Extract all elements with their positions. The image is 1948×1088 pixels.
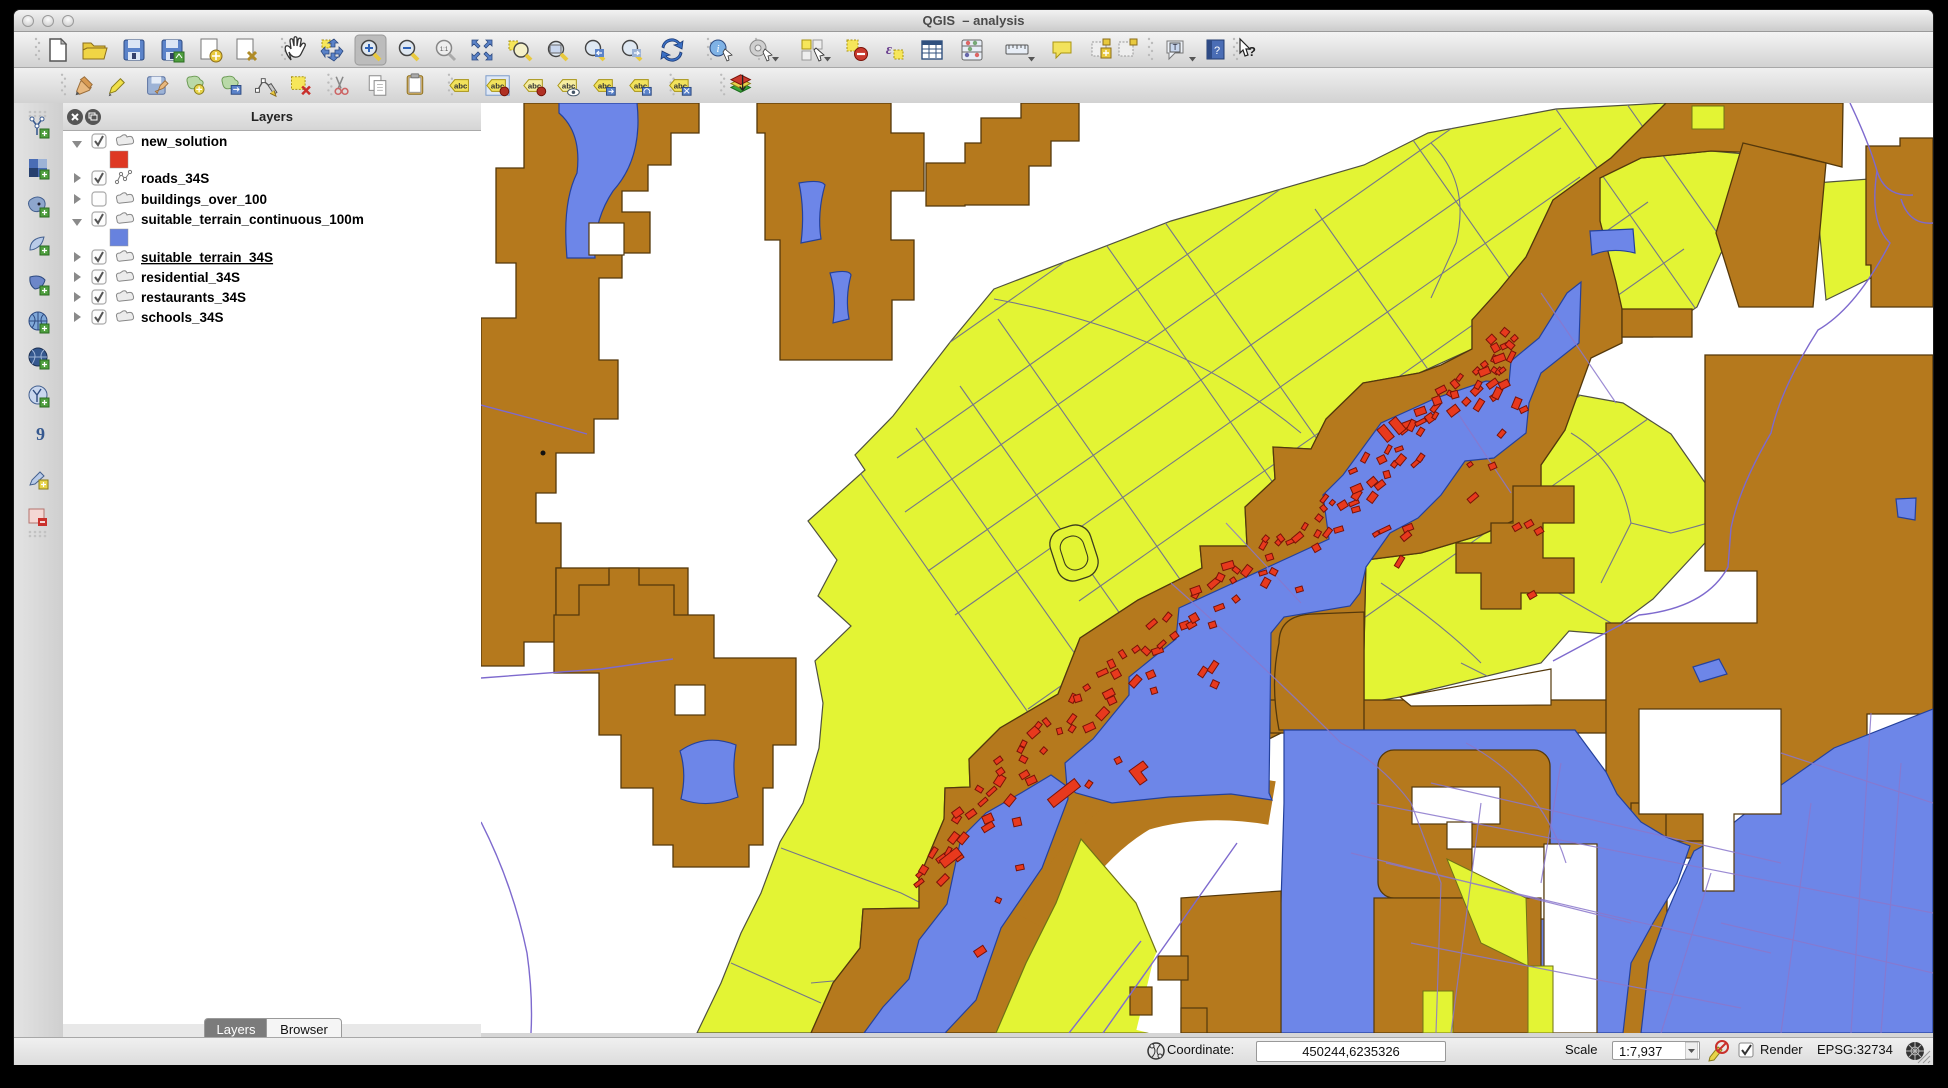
svg-text:suitable_terrain_34S: suitable_terrain_34S: [141, 250, 273, 265]
svg-text:buildings_over_100: buildings_over_100: [141, 192, 267, 207]
svg-text:ε: ε: [886, 42, 893, 58]
svg-text:suitable_terrain_continuous_10: suitable_terrain_continuous_100m: [141, 212, 364, 227]
svg-text:schools_34S: schools_34S: [141, 310, 224, 325]
svg-text:9: 9: [36, 424, 45, 444]
svg-text:T: T: [1173, 43, 1178, 52]
svg-text:i: i: [716, 43, 719, 55]
svg-text:1:1: 1:1: [440, 47, 449, 53]
svg-text:?: ?: [1214, 45, 1220, 57]
svg-text:residential_34S: residential_34S: [141, 270, 240, 285]
svg-text:?: ?: [1248, 44, 1256, 59]
svg-text:restaurants_34S: restaurants_34S: [141, 290, 246, 305]
svg-text:new_solution: new_solution: [141, 134, 227, 149]
svg-text:roads_34S: roads_34S: [141, 171, 209, 186]
svg-text:abc: abc: [454, 81, 468, 90]
